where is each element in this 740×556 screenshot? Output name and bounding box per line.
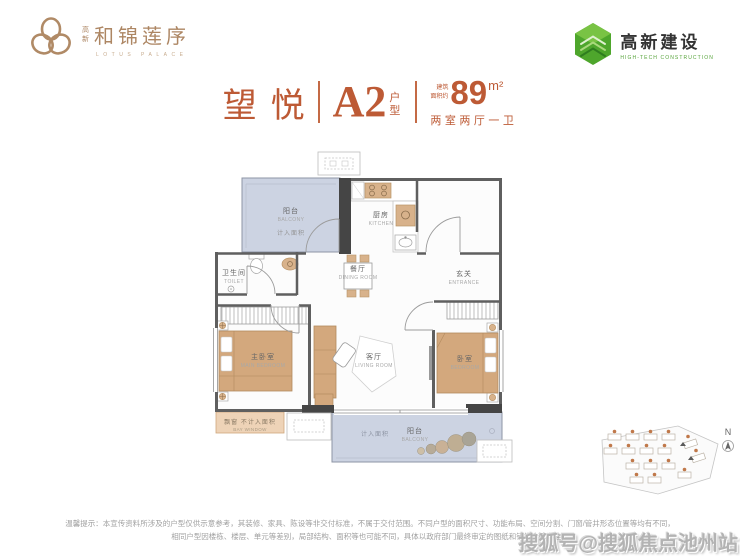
- brand-right-logo: 高新建设 HIGH-TECH CONSTRUCTION: [573, 22, 714, 66]
- brand-left-name: 和锦莲序: [94, 20, 190, 49]
- poster-page: 高新 和锦莲序 LOTUS PALACE 高新建设 HIGH-TECH CONS…: [0, 0, 740, 556]
- unit-code: A2: [333, 80, 387, 124]
- room-label-bay-window: 飘窗 不计入面积 BAY WINDOW: [224, 417, 276, 432]
- room-label-dining: 餐厅 DINING ROOM: [339, 264, 378, 281]
- north-label: N: [725, 427, 732, 437]
- area-unit: m²: [488, 78, 503, 93]
- watermark: 搜狐号@搜狐焦点池州站: [518, 527, 738, 556]
- area-prefix: 建筑 面积约: [430, 84, 448, 102]
- room-label-bathroom: 卫生间 TOILET: [222, 268, 246, 285]
- room-label-foyer: 玄关 ENTRANCE: [449, 269, 480, 286]
- brand-left-logo: 高新 和锦莲序 LOTUS PALACE: [28, 16, 190, 62]
- brand-right-name: 高新建设: [620, 28, 714, 53]
- brand-left-subtitle: LOTUS PALACE: [96, 52, 190, 58]
- site-plan-map: N: [592, 420, 740, 512]
- room-label-living-room: 客厅 LIVING ROOM: [355, 352, 393, 369]
- north-compass-icon: N: [723, 427, 734, 452]
- unit-title: 望悦 A2 户型 建筑 面积约 89 m² 两室两厅一卫: [0, 76, 740, 128]
- label-counted-area: 计入面积: [361, 429, 389, 438]
- room-layout-label: 两室两厅一卫: [430, 112, 517, 128]
- room-label-bedroom: 卧室 BEDROOM: [451, 354, 480, 371]
- brand-left-prefix: 高新: [82, 27, 91, 43]
- hexagon-logo-icon: [573, 22, 613, 66]
- site-plan: N: [592, 420, 740, 512]
- floorplan: 阳台 BALCONY 计入面积 厨房 KITCHEN 卫生间 TOILET 餐厅…: [200, 140, 520, 476]
- brand-right-subtitle: HIGH-TECH CONSTRUCTION: [620, 55, 714, 61]
- unit-type-label: 户型: [389, 92, 402, 118]
- lotus-icon: [28, 16, 74, 62]
- title-divider: [318, 81, 320, 123]
- room-label-balcony-top: 阳台 BALCONY 计入面积: [277, 206, 305, 237]
- room-label-balcony-bottom: 阳台 BALCONY: [402, 426, 429, 443]
- area-value: 89: [450, 76, 487, 109]
- project-name: 望悦: [223, 78, 319, 127]
- room-label-kitchen: 厨房 KITCHEN: [369, 210, 394, 227]
- room-label-master-bedroom: 主卧室 MAIN BEDROOM: [241, 352, 286, 369]
- title-divider: [415, 81, 417, 123]
